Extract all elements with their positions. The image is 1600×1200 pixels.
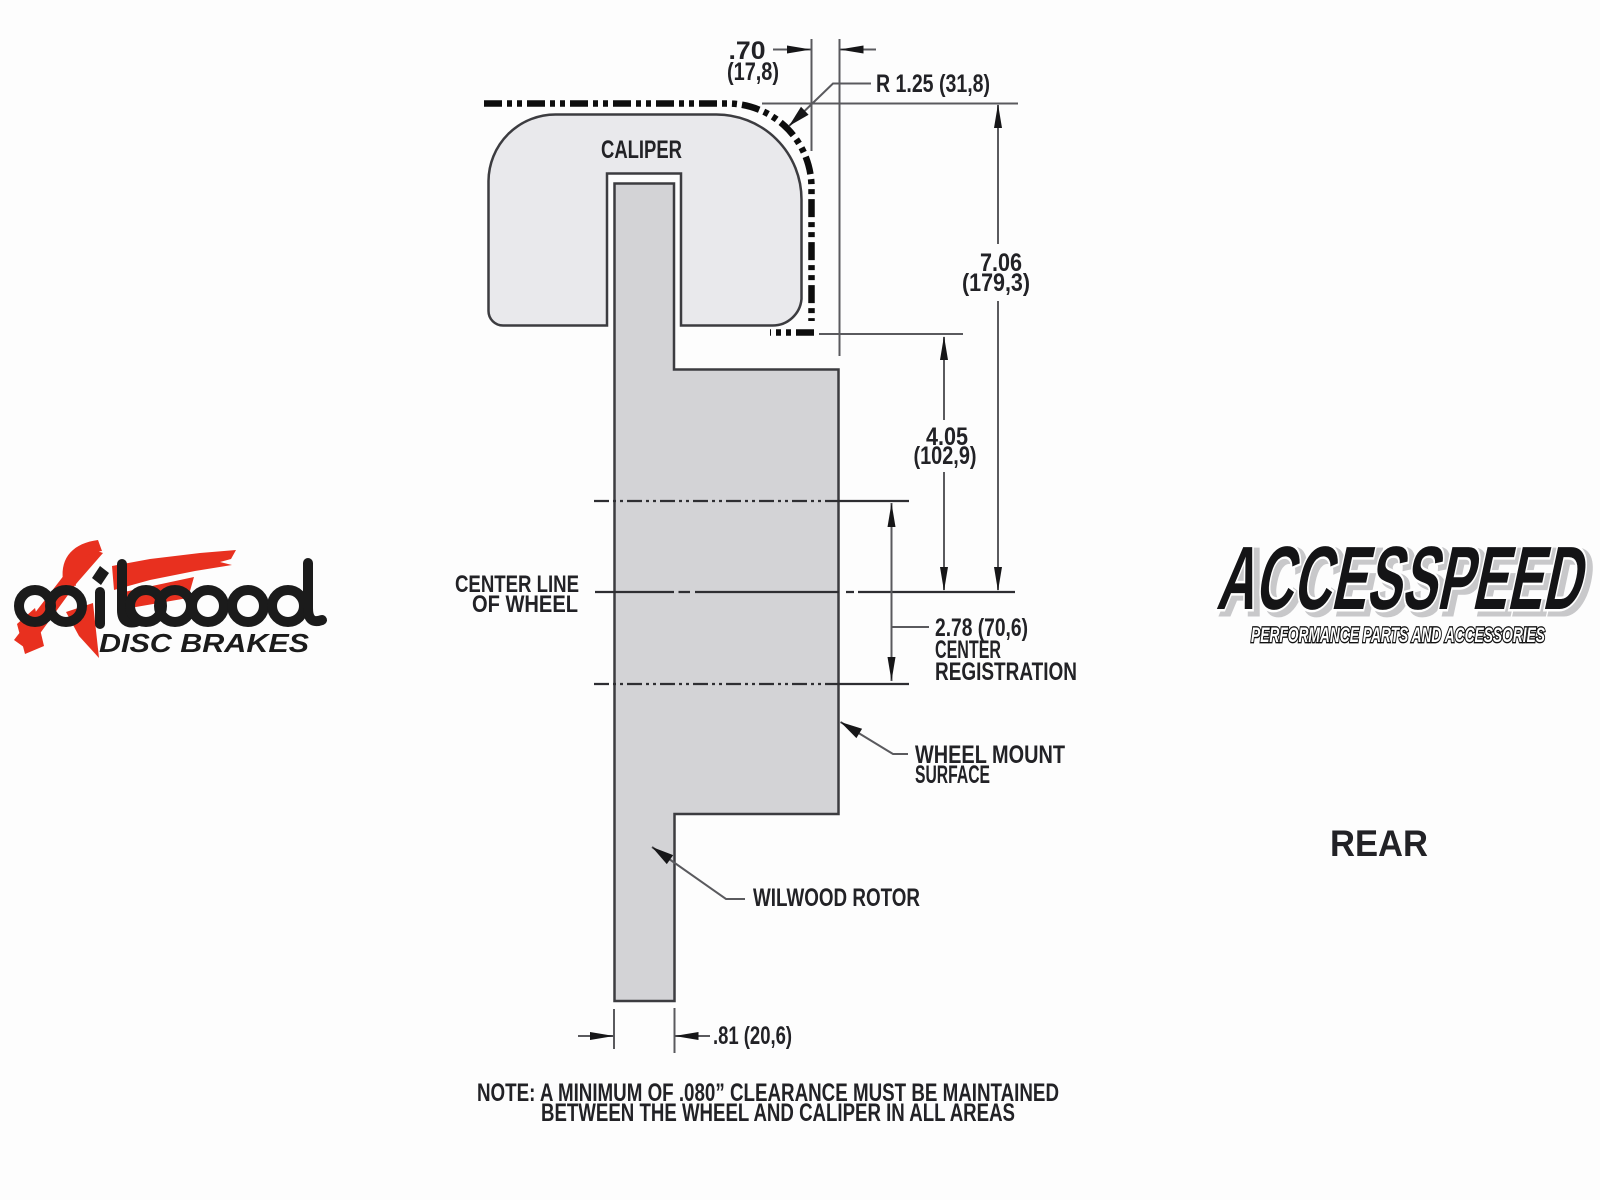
svg-text:REAR: REAR — [1330, 823, 1428, 864]
svg-text:CALIPER: CALIPER — [601, 136, 682, 164]
svg-text:PERFORMANCE PARTS AND ACCESSOR: PERFORMANCE PARTS AND ACCESSORIES — [1251, 624, 1545, 647]
svg-text:ACCESSPEED: ACCESSPEED — [1211, 529, 1596, 629]
svg-text:SURFACE: SURFACE — [915, 761, 990, 789]
svg-text:REGISTRATION: REGISTRATION — [935, 658, 1077, 686]
svg-text:DISC BRAKES: DISC BRAKES — [99, 628, 310, 658]
svg-text:OF WHEEL: OF WHEEL — [472, 591, 578, 618]
svg-text:(102,9): (102,9) — [914, 442, 977, 470]
svg-text:WILWOOD ROTOR: WILWOOD ROTOR — [753, 884, 920, 912]
svg-text:R 1.25 (31,8): R 1.25 (31,8) — [876, 70, 990, 98]
svg-text:.81 (20,6): .81 (20,6) — [713, 1022, 792, 1050]
svg-text:BETWEEN THE WHEEL AND CALIPER: BETWEEN THE WHEEL AND CALIPER IN ALL ARE… — [541, 1099, 1015, 1127]
svg-text:(17,8): (17,8) — [727, 58, 779, 86]
svg-text:(179,3): (179,3) — [962, 269, 1030, 297]
